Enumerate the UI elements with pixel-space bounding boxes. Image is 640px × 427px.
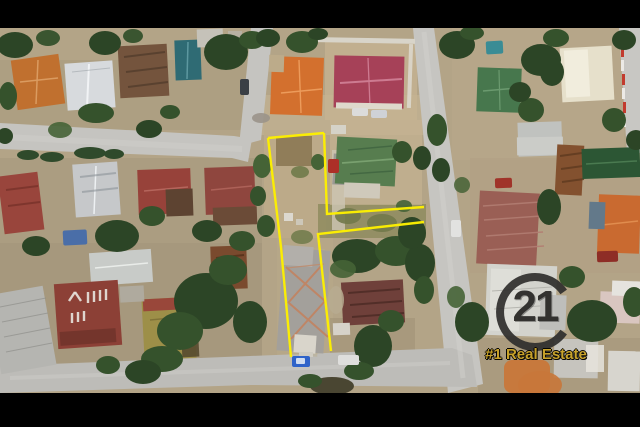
roof-ridge [187,42,188,79]
tree [89,31,121,55]
shrub [335,208,361,224]
tree [447,286,465,308]
tree [537,189,561,225]
car-blue-roof [296,358,305,364]
tree [139,206,165,226]
tree [78,103,114,123]
shrub [291,166,309,178]
roof-bluegray [589,202,606,230]
tree [567,300,617,342]
tree [396,200,412,212]
tree [209,255,247,285]
upper-lot-brush [276,136,312,166]
car-dark [240,79,249,95]
tree [413,146,431,170]
curb-stripe-white [622,88,625,99]
hedge [74,147,106,159]
hedge [104,149,124,159]
car-white-2 [451,220,461,237]
tree [455,302,489,342]
porch-white [293,334,316,353]
shrub [291,230,313,244]
tree [392,141,412,163]
tree [602,108,626,132]
pool-teal [486,41,504,55]
annex-roof-gray-2 [539,295,566,331]
tarp-blue [63,229,88,245]
tree [256,29,280,47]
gravel-pile [252,113,270,123]
house-eave-white [336,102,402,109]
roof-notch [269,55,285,73]
letterbox-bottom [0,393,640,427]
hedge [17,150,39,160]
tree [96,356,120,374]
shrub [298,374,322,388]
property-house-upper [282,245,313,267]
tree [48,122,72,138]
tree [192,220,222,242]
shrub [257,215,275,237]
car-white [352,108,368,116]
tree [378,310,404,332]
tree [123,29,143,43]
tree [95,220,139,252]
shed-roof-rust [555,144,585,195]
tree [308,28,328,40]
tree [460,26,484,40]
shrub [250,186,266,206]
tree [414,276,434,304]
tree [354,325,392,367]
tree [405,244,435,282]
shed-white [333,323,350,336]
tree [432,158,450,182]
shrub [311,154,325,170]
tree [22,236,50,256]
car-red-2 [495,178,512,189]
tree [229,231,255,251]
tree [160,105,180,119]
debris-white [284,213,293,221]
tree [509,82,531,102]
car-silver [371,110,387,118]
tree [427,114,447,146]
shed-gray-small [120,285,145,302]
curb-stripe-red [622,74,625,85]
building-bottom-white [586,345,604,372]
shrub [253,154,271,178]
scene-svg [0,0,640,427]
warehouse-roof-gray [517,137,563,156]
annex-roof-brown [166,189,194,217]
tree [36,30,60,46]
car-red [328,159,339,173]
annex-roof-brown-2 [213,206,258,226]
tree [330,260,356,278]
tree [136,120,162,138]
debris-pile [328,286,344,314]
building-bottom-2 [608,351,640,392]
curb-stripe-white [621,60,624,71]
tree [157,312,203,350]
curb-stripe-red [623,102,626,113]
car-red-3 [597,251,618,263]
tree [233,301,267,343]
hedge [40,152,64,162]
house-roof-maroon-faded [476,190,540,266]
tree [612,30,636,50]
debris-white [296,219,303,225]
real-estate-aerial-listing-photo: 21 #1 Real Estate [0,0,640,427]
tree [454,177,470,193]
letterbox-top [0,0,640,28]
patio-white [344,182,381,198]
car-white-3 [338,355,359,365]
shrub [367,214,397,232]
tree [540,58,564,86]
shed-white-north [331,125,346,134]
roof-highlight [564,49,590,97]
tree [543,29,569,47]
tree [125,360,161,384]
